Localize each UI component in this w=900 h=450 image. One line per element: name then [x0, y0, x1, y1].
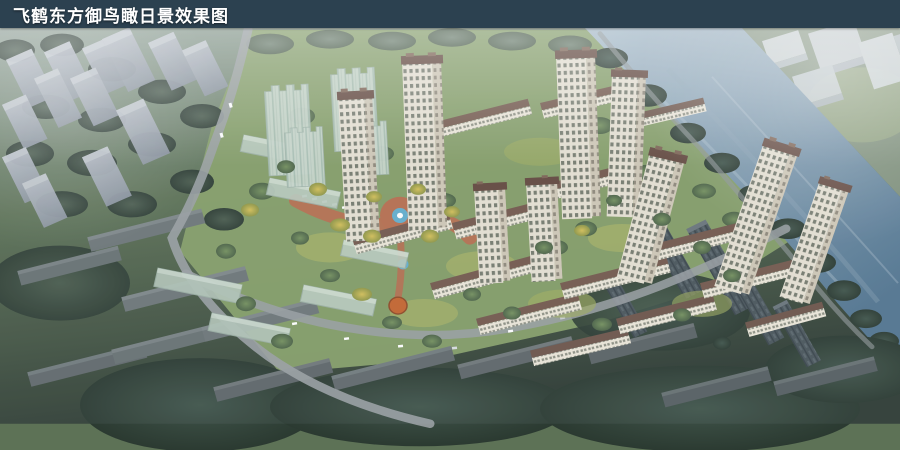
aerial-rendering: [0, 28, 900, 450]
haze-overlay: [0, 28, 900, 424]
page-title: 飞鹤东方御鸟瞰日景效果图: [0, 2, 229, 27]
rendering-viewport: 飞鹤东方御鸟瞰日景效果图: [0, 0, 900, 450]
title-bar: 飞鹤东方御鸟瞰日景效果图: [0, 0, 900, 28]
